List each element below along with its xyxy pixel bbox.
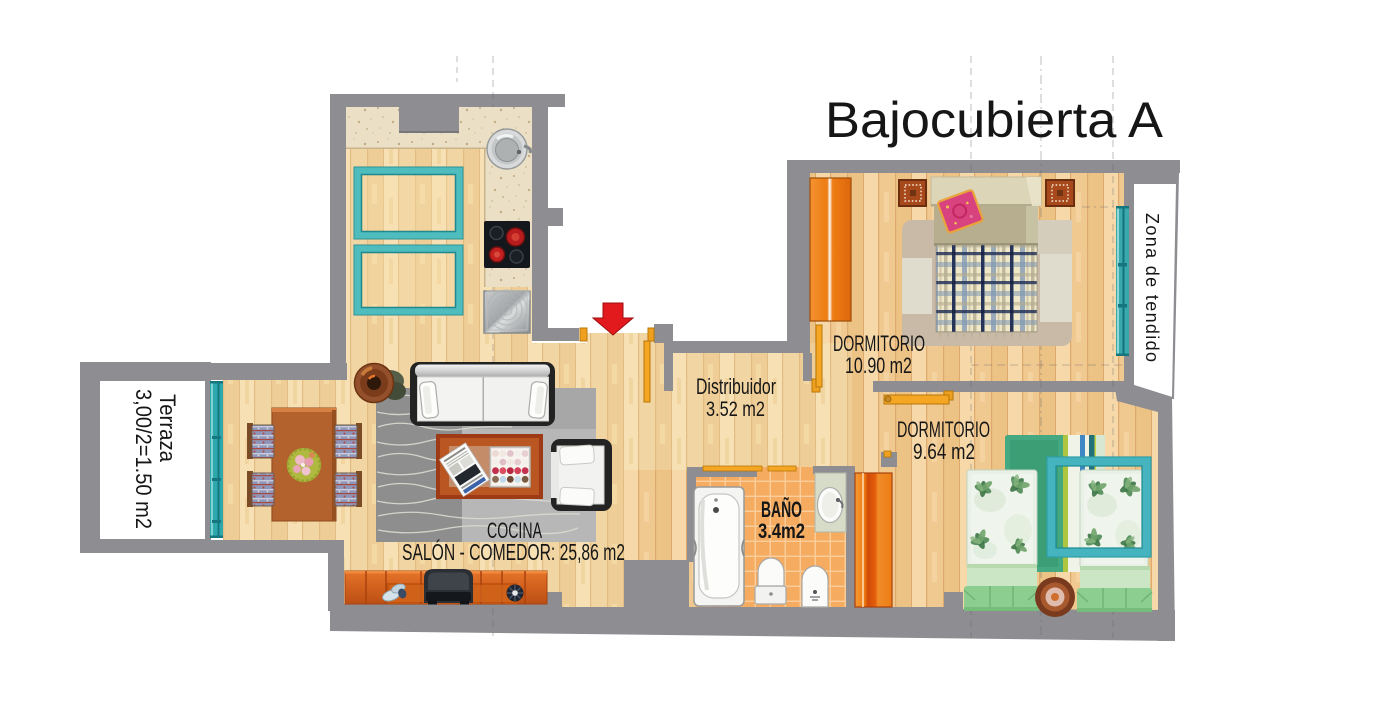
svg-text:Terraza: Terraza <box>155 394 180 463</box>
svg-text:9.64 m2: 9.64 m2 <box>913 439 975 464</box>
svg-text:3,00/2=1.50 m2: 3,00/2=1.50 m2 <box>131 389 156 529</box>
svg-text:3.4m2: 3.4m2 <box>758 520 805 543</box>
svg-text:10.90 m2: 10.90 m2 <box>845 353 912 378</box>
svg-text:BAÑO: BAÑO <box>761 497 802 522</box>
svg-text:SALÓN - COMEDOR: 25,86 m2: SALÓN - COMEDOR: 25,86 m2 <box>402 539 625 565</box>
svg-text:Bajocubierta A: Bajocubierta A <box>825 92 1164 148</box>
svg-text:3.52 m2: 3.52 m2 <box>706 398 765 421</box>
svg-text:Zona de tendido: Zona de tendido <box>1142 213 1162 362</box>
svg-text:Distribuidor: Distribuidor <box>696 374 776 399</box>
